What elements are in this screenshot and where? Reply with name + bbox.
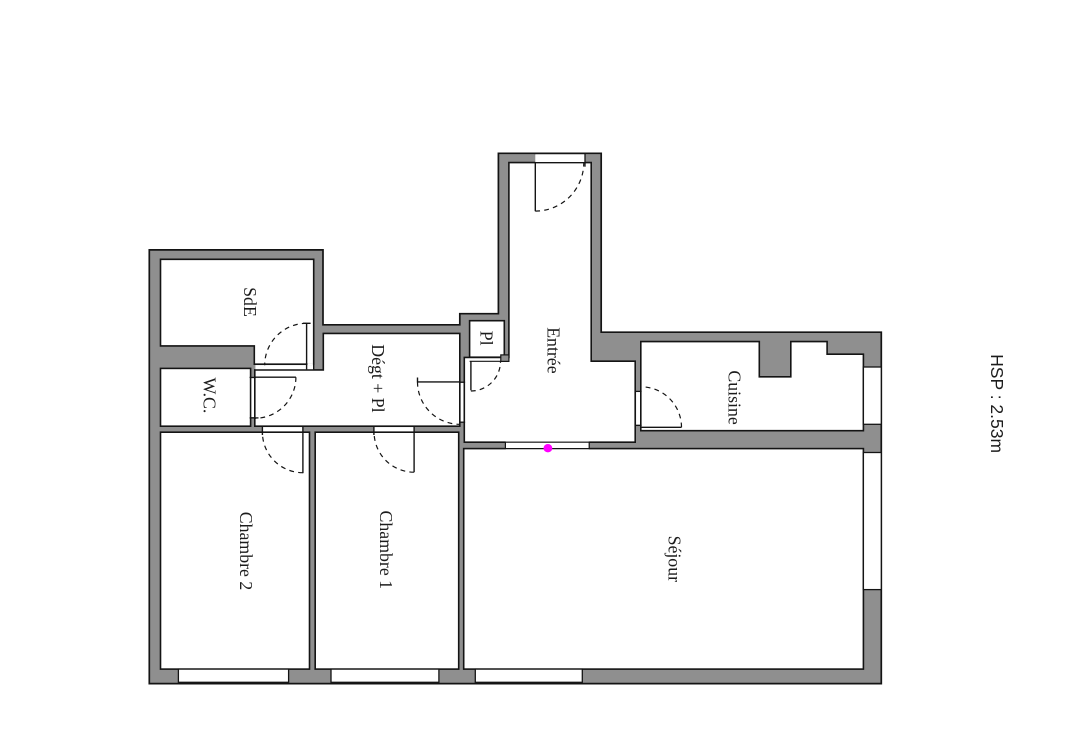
svg-text:W.C.: W.C. <box>199 377 219 413</box>
svg-text:Séjour: Séjour <box>665 536 685 583</box>
svg-text:Cuisine: Cuisine <box>725 370 745 424</box>
svg-text:Entrée: Entrée <box>544 327 564 374</box>
svg-text:Dégt + Pl: Dégt + Pl <box>368 344 388 412</box>
svg-text:Chambre 1: Chambre 1 <box>376 511 396 590</box>
svg-text:Pl: Pl <box>477 331 497 346</box>
svg-text:HSP : 2.53m: HSP : 2.53m <box>987 354 1007 453</box>
svg-text:SdE: SdE <box>240 287 260 317</box>
svg-text:Chambre 2: Chambre 2 <box>236 512 256 591</box>
